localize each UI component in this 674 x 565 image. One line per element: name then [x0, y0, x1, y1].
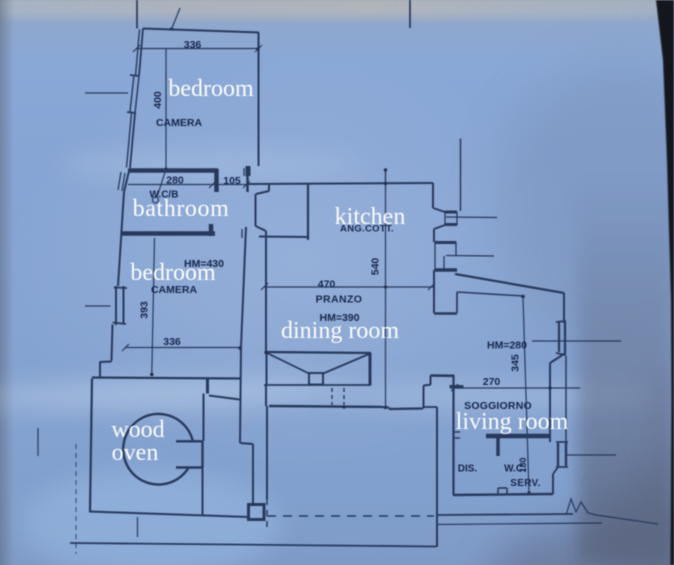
- svg-text:PRANZO: PRANZO: [316, 294, 363, 306]
- svg-text:105: 105: [223, 175, 241, 187]
- svg-text:400: 400: [152, 91, 164, 109]
- svg-text:280: 280: [166, 175, 184, 187]
- svg-text:336: 336: [163, 336, 181, 348]
- svg-text:living room: living room: [456, 409, 569, 435]
- svg-text:bathroom: bathroom: [133, 196, 230, 222]
- svg-text:470: 470: [318, 279, 336, 291]
- svg-text:DIS.: DIS.: [458, 464, 478, 475]
- svg-text:336: 336: [184, 39, 202, 51]
- svg-text:CAMERA: CAMERA: [156, 117, 202, 129]
- svg-text:345: 345: [510, 354, 522, 372]
- svg-text:180: 180: [518, 457, 528, 472]
- svg-text:SERV.: SERV.: [510, 478, 540, 489]
- svg-text:kitchen: kitchen: [335, 204, 406, 230]
- svg-text:oven: oven: [112, 440, 159, 466]
- svg-text:270: 270: [483, 376, 501, 388]
- svg-text:bedroom: bedroom: [130, 260, 216, 286]
- svg-text:bedroom: bedroom: [168, 76, 254, 102]
- svg-text:dining room: dining room: [281, 318, 399, 344]
- svg-text:HM=280: HM=280: [487, 340, 527, 352]
- svg-text:393: 393: [139, 301, 151, 319]
- svg-text:540: 540: [370, 258, 382, 276]
